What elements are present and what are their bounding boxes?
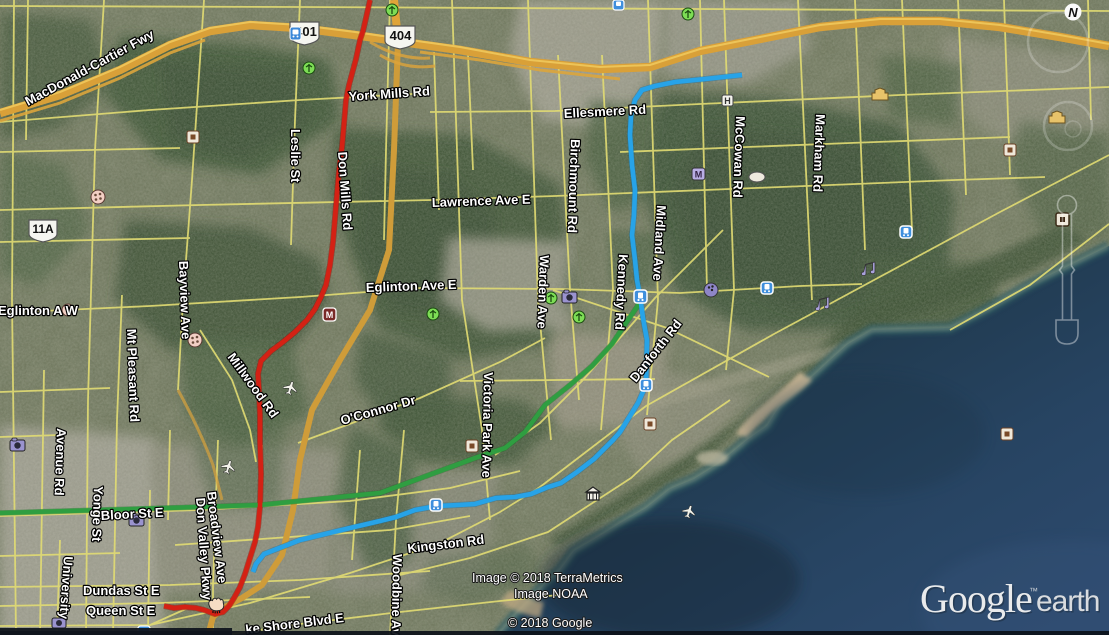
- svg-text:Woodbine Ave: Woodbine Ave: [388, 554, 405, 635]
- svg-text:McCowan Rd: McCowan Rd: [730, 116, 748, 198]
- svg-text:Image NOAA: Image NOAA: [514, 587, 588, 601]
- svg-text:M: M: [326, 310, 334, 320]
- svg-text:M: M: [695, 170, 703, 180]
- svg-text:H: H: [724, 96, 731, 106]
- svg-text:Eglinton Ave E: Eglinton Ave E: [366, 277, 458, 295]
- svg-text:N: N: [1068, 5, 1078, 20]
- svg-text:Markham Rd: Markham Rd: [810, 114, 828, 193]
- svg-text:© 2018 Google: © 2018 Google: [508, 616, 592, 630]
- svg-text:Eglinton A​ W: Eglinton A​ W: [0, 303, 79, 318]
- svg-text:404: 404: [390, 28, 412, 43]
- svg-text:Queen St E: Queen St E: [86, 603, 156, 618]
- svg-text:Google: Google: [920, 576, 1032, 621]
- svg-text:Victoria Park Ave: Victoria Park Ave: [479, 372, 496, 478]
- svg-text:Warden Ave: Warden Ave: [534, 255, 552, 329]
- svg-text:Leslie St: Leslie St: [288, 129, 303, 183]
- svg-text:11A: 11A: [32, 222, 54, 236]
- svg-text:Yonge St: Yonge St: [89, 486, 106, 543]
- svg-text:Avenue Rd: Avenue Rd: [52, 428, 69, 496]
- svg-text:Bayview Ave: Bayview Ave: [176, 261, 194, 340]
- svg-text:Image © 2018 TerraMetrics: Image © 2018 TerraMetrics: [472, 571, 623, 585]
- svg-text:Dundas St E: Dundas St E: [83, 583, 160, 598]
- svg-text:earth: earth: [1036, 585, 1099, 618]
